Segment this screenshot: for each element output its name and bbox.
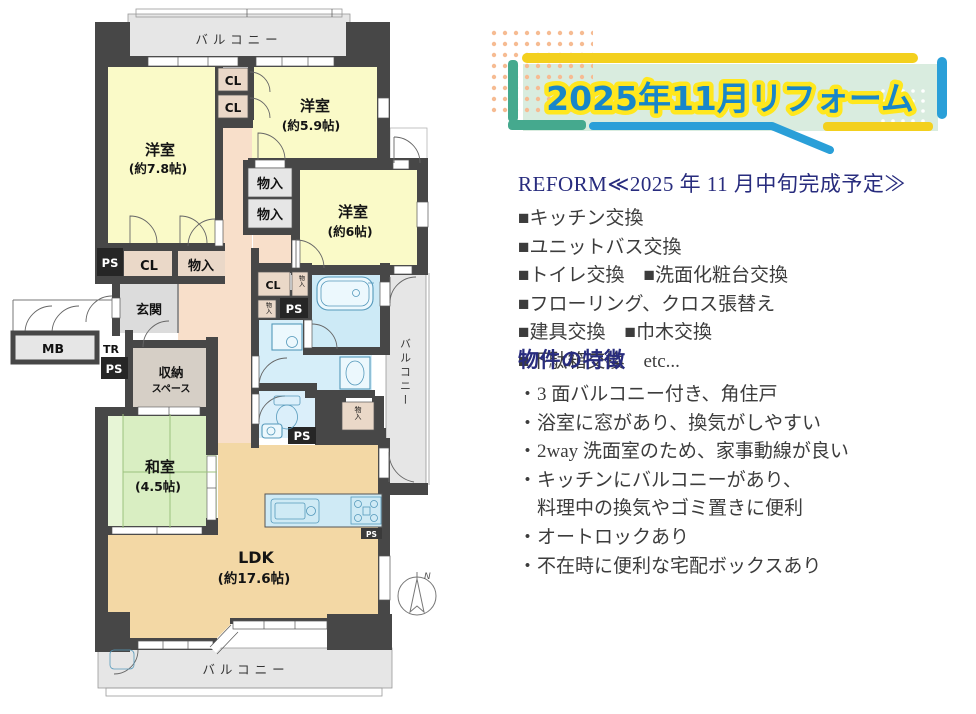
features-section: 物件の特徴 ・3 面バルコニー付き、角住戸 ・浴室に窓があり、換気がしやすい ・… xyxy=(518,344,964,581)
ps-label-kitchen: PS xyxy=(366,530,377,539)
yo59-name: 洋室 xyxy=(300,97,330,115)
yo6-name: 洋室 xyxy=(338,203,368,221)
balcony-top: バルコニー xyxy=(128,9,350,58)
banner-line-top xyxy=(522,53,918,63)
banner-bracket-left-foot xyxy=(508,120,586,130)
banner-line-bottom-right xyxy=(823,122,933,131)
ps-label-2: PS xyxy=(106,362,123,376)
feature-item: ・2way 洗面室のため、家事動線が良い xyxy=(518,438,964,467)
banner-bracket-left xyxy=(508,60,518,122)
kitchen-counter xyxy=(265,494,382,527)
compass-icon: N xyxy=(398,572,436,615)
reform-item: ■トイレ交換 ■洗面化粧台交換 xyxy=(518,262,964,291)
feature-item: ・オートロックあり xyxy=(518,524,964,553)
shuno-label-1: 収納 xyxy=(158,365,183,380)
cl-row-label: CL xyxy=(140,259,158,274)
ldk-size: (約17.6帖) xyxy=(218,570,291,587)
cl-top1-label: CL xyxy=(225,74,242,88)
washitsu-size: (4.5帖) xyxy=(135,479,181,494)
features-heading: 物件の特徴 xyxy=(518,344,964,374)
ps-label-1: PS xyxy=(102,256,119,270)
tr-label: TR xyxy=(103,343,120,356)
washitsu-name: 和室 xyxy=(145,458,175,476)
yo78-size: (約7.8帖) xyxy=(129,161,188,176)
monoiri-small2-label: 物入 xyxy=(265,301,272,314)
monoiri-small3-label: 物入 xyxy=(354,405,362,420)
page: バルコニー バルコニー バルコニー xyxy=(0,0,976,714)
mb-label: MB xyxy=(42,341,64,356)
monoiri-small1-label: 物入 xyxy=(298,274,305,287)
upper-right-porch xyxy=(390,128,427,160)
ps-label-4: PS xyxy=(294,429,311,443)
balcony-bottom-label: バルコニー xyxy=(202,662,289,677)
feature-item: 料理中の換気やゴミ置きに便利 xyxy=(518,495,964,524)
ps-label-3: PS xyxy=(286,302,303,316)
monoiri-center2-label: 物入 xyxy=(257,207,283,223)
cl-top2-label: CL xyxy=(225,101,242,115)
feature-item: ・キッチンにバルコニーがあり、 xyxy=(518,467,964,496)
genkan-label: 玄関 xyxy=(136,302,162,318)
monoiri-center1-label: 物入 xyxy=(257,176,283,192)
feature-item: ・浴室に窓があり、換気がしやすい xyxy=(518,410,964,439)
balcony-top-label: バルコニー xyxy=(195,32,282,47)
banner-title: 2025年11月リフォーム xyxy=(546,79,914,118)
cl-sanitary-label: CL xyxy=(265,279,280,292)
compass-n-label: N xyxy=(424,572,431,582)
floor-plan: バルコニー バルコニー バルコニー xyxy=(0,0,490,714)
yo78-name: 洋室 xyxy=(145,141,175,159)
reform-banner: 2025年11月リフォーム xyxy=(480,8,976,166)
balcony-right-label: バルコニー xyxy=(399,338,412,408)
reform-item: ■フローリング、クロス張替え xyxy=(518,291,964,320)
banner-bracket-right xyxy=(937,57,947,119)
shuno-label-2: スペース xyxy=(152,383,191,395)
balcony-right: バルコニー xyxy=(386,273,429,485)
ldk-name: LDK xyxy=(238,548,274,567)
feature-item: ・不在時に便利な宅配ボックスあり xyxy=(518,553,964,582)
monoiri-row-label: 物入 xyxy=(188,258,214,274)
feature-item: ・3 面バルコニー付き、角住戸 xyxy=(518,381,964,410)
balcony-bottom: バルコニー xyxy=(98,648,392,696)
yo59-size: (約5.9帖) xyxy=(282,118,341,133)
bathtub-icon xyxy=(317,277,374,310)
reform-item: ■ユニットバス交換 xyxy=(518,234,964,263)
reform-item: ■キッチン交換 xyxy=(518,205,964,234)
reform-heading: REFORM≪2025 年 11 月中旬完成予定≫ xyxy=(518,168,964,198)
yo6-size: (約6帖) xyxy=(327,224,372,239)
